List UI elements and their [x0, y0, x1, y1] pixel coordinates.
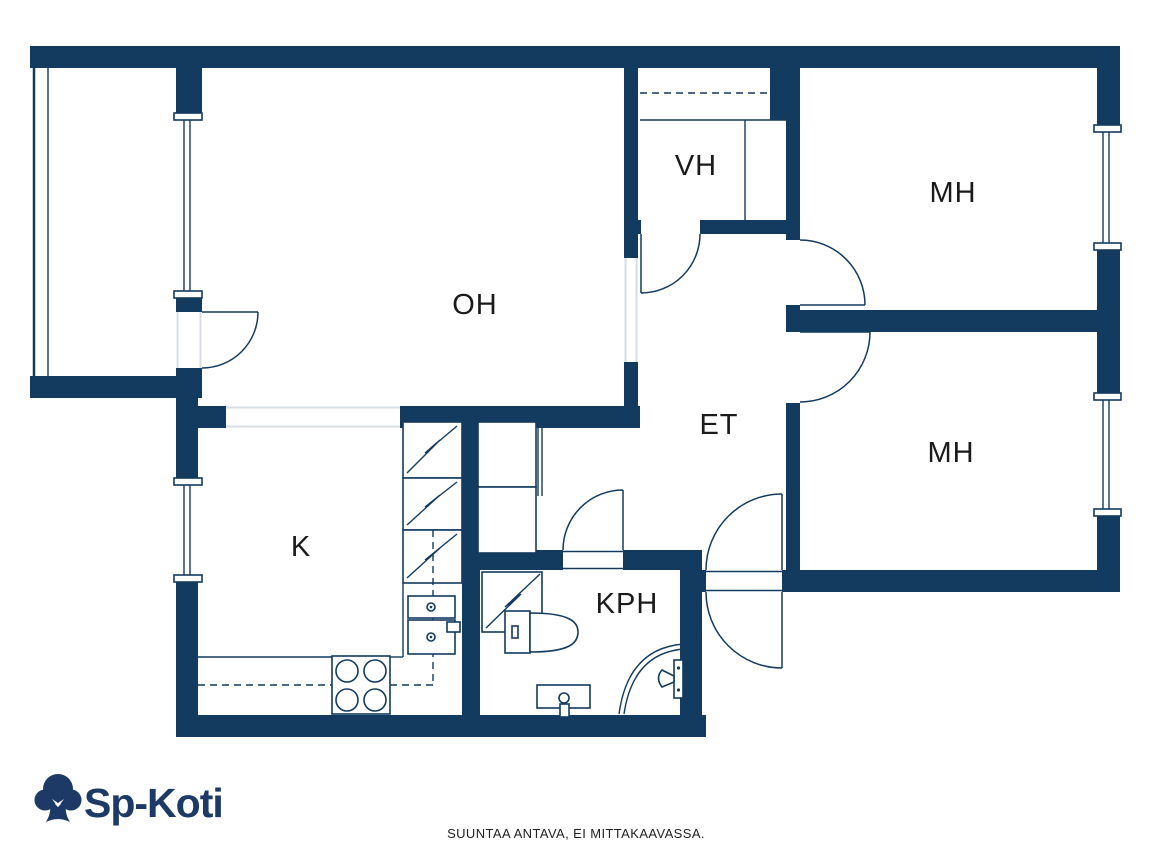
kitchen-sink: [408, 596, 460, 654]
mh-mid-door: [800, 332, 870, 402]
room-label-vh: VH: [675, 150, 717, 182]
room-label-oh: OH: [452, 289, 498, 321]
mh-top-door: [800, 240, 865, 305]
window-mh-mid: [1094, 393, 1121, 516]
washbasin: [537, 685, 590, 717]
stove: [332, 656, 390, 714]
windows: [174, 113, 1121, 582]
room-label-k: K: [291, 531, 311, 563]
hall-closets: [478, 422, 542, 553]
window-mh-top: [1094, 125, 1121, 250]
room-label-mh-top: MH: [929, 177, 976, 209]
floorplan-svg: OH VH MH MH ET K KPH Sp-Koti SUUNTAA ANT…: [0, 0, 1152, 864]
floorplan-page: OH VH MH MH ET K KPH Sp-Koti SUUNTAA ANT…: [0, 0, 1152, 864]
balcony-door: [202, 312, 258, 368]
kph-door: [563, 490, 623, 569]
logo-text: Sp-Koti: [84, 780, 223, 826]
room-label-kph: KPH: [596, 588, 659, 620]
disclaimer-text: SUUNTAA ANTAVA, EI MITTAKAAVASSA.: [447, 826, 705, 841]
tree-icon: [35, 774, 82, 822]
room-label-et: ET: [699, 409, 738, 441]
front-door: [706, 494, 782, 668]
balcony: [34, 68, 48, 376]
wall-openings: [178, 258, 637, 427]
window-kitchen: [174, 478, 202, 582]
kitchen-fixtures: [198, 422, 462, 714]
room-label-mh-mid: MH: [927, 437, 974, 469]
toilet: [505, 611, 578, 653]
window-oh: [174, 113, 202, 298]
logo: Sp-Koti: [35, 774, 223, 826]
shower: [619, 644, 684, 714]
vh-door: [641, 234, 700, 293]
